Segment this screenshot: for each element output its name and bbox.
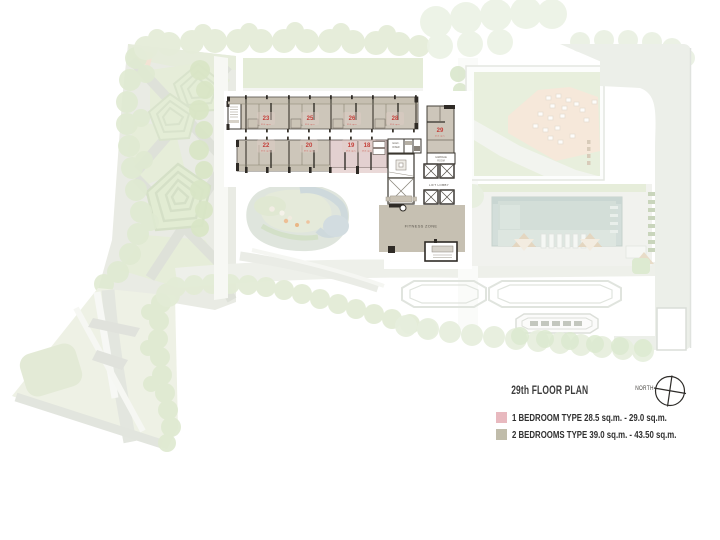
svg-text:FITNESS ZONE: FITNESS ZONE: [405, 224, 438, 229]
svg-text:29th FLOOR PLAN: 29th FLOOR PLAN: [511, 385, 588, 398]
svg-text:RISER: RISER: [392, 146, 400, 149]
svg-text:23: 23: [263, 116, 270, 122]
svg-text:22: 22: [263, 143, 270, 149]
svg-text:28.5 sq.m.: 28.5 sq.m.: [346, 151, 357, 153]
svg-text:39.0 sq.m.: 39.0 sq.m.: [304, 151, 315, 153]
svg-text:39.0 sq.m.: 39.0 sq.m.: [347, 124, 358, 126]
svg-text:29: 29: [437, 128, 444, 134]
svg-text:26: 26: [349, 116, 356, 122]
svg-text:39.0 sq.m.: 39.0 sq.m.: [261, 124, 272, 126]
svg-text:LIFT LOBBY: LIFT LOBBY: [429, 183, 449, 187]
svg-text:ROOM: ROOM: [437, 160, 444, 163]
svg-text:NORTH: NORTH: [635, 386, 654, 393]
svg-text:2 BEDROOMS TYPE 39.0 sq.m. - 4: 2 BEDROOMS TYPE 39.0 sq.m. - 43.50 sq.m.: [512, 429, 676, 440]
svg-text:28: 28: [392, 116, 399, 122]
svg-text:25: 25: [307, 116, 314, 122]
svg-text:20: 20: [306, 143, 313, 149]
svg-text:39.0 sq.m.: 39.0 sq.m.: [305, 124, 316, 126]
svg-text:39.0 sq.m.: 39.0 sq.m.: [261, 151, 272, 153]
svg-text:ELEC.: ELEC.: [393, 142, 400, 145]
svg-text:18: 18: [364, 143, 371, 149]
svg-text:1 BEDROOM TYPE 28.5 sq.m. - 29: 1 BEDROOM TYPE 28.5 sq.m. - 29.0 sq.m.: [512, 412, 667, 423]
svg-text:28.5 sq.m.: 28.5 sq.m.: [362, 151, 373, 153]
svg-text:39.0 sq.m.: 39.0 sq.m.: [390, 124, 401, 126]
svg-text:43.5 sq.m.: 43.5 sq.m.: [435, 136, 446, 138]
svg-text:19: 19: [348, 143, 355, 149]
